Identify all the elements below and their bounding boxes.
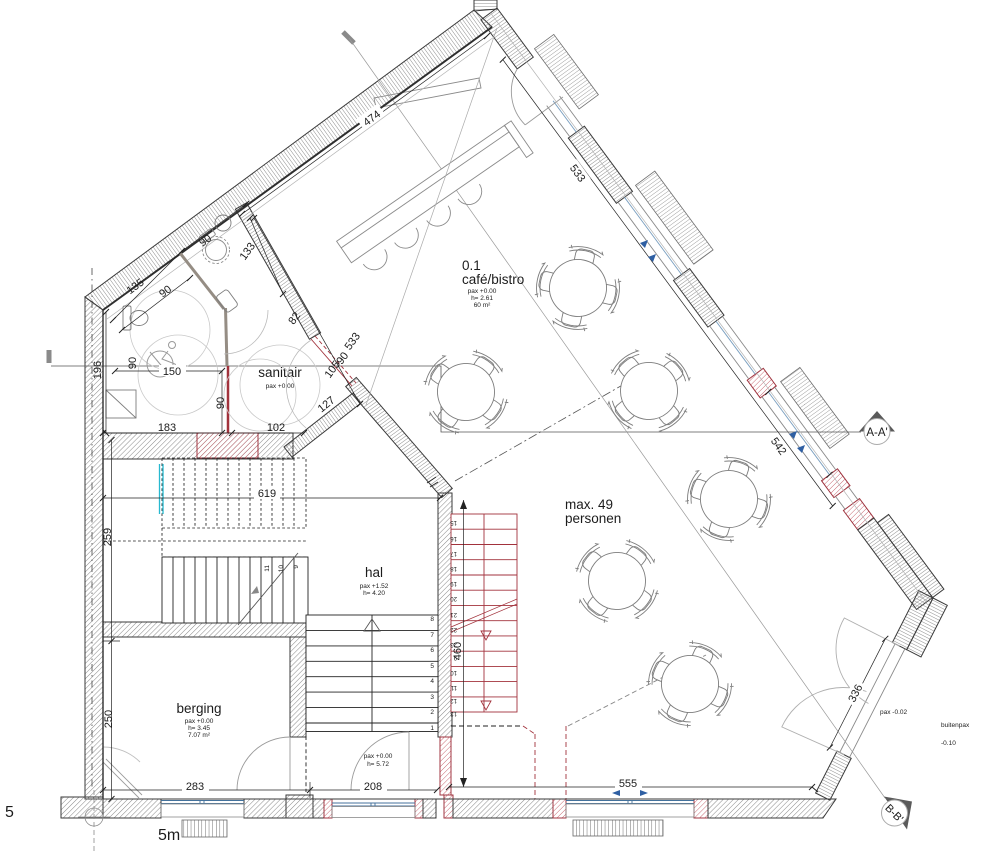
svg-text:16: 16 [450,535,457,541]
svg-text:-0.10: -0.10 [941,740,956,747]
svg-text:sanitair: sanitair [258,365,302,380]
svg-text:13: 13 [450,710,457,716]
svg-text:208: 208 [364,781,382,793]
svg-text:pax +1.52: pax +1.52 [360,583,389,590]
svg-text:10: 10 [278,565,285,573]
svg-text:22: 22 [450,626,457,632]
svg-text:A-A': A-A' [866,427,887,439]
svg-text:pax +0.00: pax +0.00 [364,753,393,760]
svg-text:11: 11 [450,684,457,690]
svg-text:personen: personen [565,511,621,526]
svg-text:10: 10 [450,669,457,675]
svg-text:17: 17 [450,550,457,556]
svg-text:20: 20 [450,595,457,601]
svg-text:9: 9 [293,565,300,569]
svg-text:1: 1 [430,725,434,732]
svg-text:5: 5 [5,804,14,821]
svg-text:90: 90 [127,357,139,369]
svg-text:11: 11 [264,565,271,572]
svg-text:533: 533 [343,331,363,353]
svg-text:café/bistro: café/bistro [462,272,524,287]
svg-text:619: 619 [258,488,276,500]
svg-text:102: 102 [267,422,285,434]
svg-text:h= 5.72: h= 5.72 [367,761,389,768]
svg-text:283: 283 [186,781,204,793]
svg-text:7: 7 [430,632,434,639]
svg-text:5m: 5m [158,827,180,844]
svg-text:12: 12 [450,697,457,703]
svg-text:183: 183 [158,422,176,434]
svg-text:pax +0.00: pax +0.00 [185,718,214,725]
svg-text:259: 259 [102,528,114,546]
svg-text:h= 3.45: h= 3.45 [188,725,210,732]
svg-text:pax +0.00: pax +0.00 [266,383,295,390]
svg-text:h= 2.61: h= 2.61 [471,295,493,302]
svg-text:4: 4 [430,678,434,685]
svg-text:90: 90 [215,397,227,409]
svg-text:pax +0.00: pax +0.00 [468,288,497,295]
svg-text:196: 196 [92,361,104,379]
svg-text:berging: berging [176,701,221,716]
svg-text:3: 3 [430,694,434,701]
svg-text:h= 4.20: h= 4.20 [363,590,385,597]
svg-text:90: 90 [157,283,174,300]
svg-text:21: 21 [450,611,457,617]
svg-text:2: 2 [430,709,434,716]
svg-text:555: 555 [619,778,637,790]
svg-text:15: 15 [450,519,457,525]
svg-text:18: 18 [450,565,457,571]
svg-text:0.1: 0.1 [462,258,481,273]
svg-text:6: 6 [430,647,434,654]
svg-text:460: 460 [452,642,464,660]
svg-text:5: 5 [430,663,434,670]
svg-text:150: 150 [163,366,181,378]
svg-text:7.07 m²: 7.07 m² [188,732,211,739]
svg-text:hal: hal [365,565,383,580]
svg-text:buitenpax: buitenpax [941,722,970,729]
svg-text:8: 8 [430,616,434,623]
svg-text:max. 49: max. 49 [565,497,613,512]
svg-text:19: 19 [450,580,457,586]
svg-text:60 m²: 60 m² [474,302,491,309]
svg-text:250: 250 [103,710,115,728]
svg-text:pax -0.02: pax -0.02 [880,709,907,716]
